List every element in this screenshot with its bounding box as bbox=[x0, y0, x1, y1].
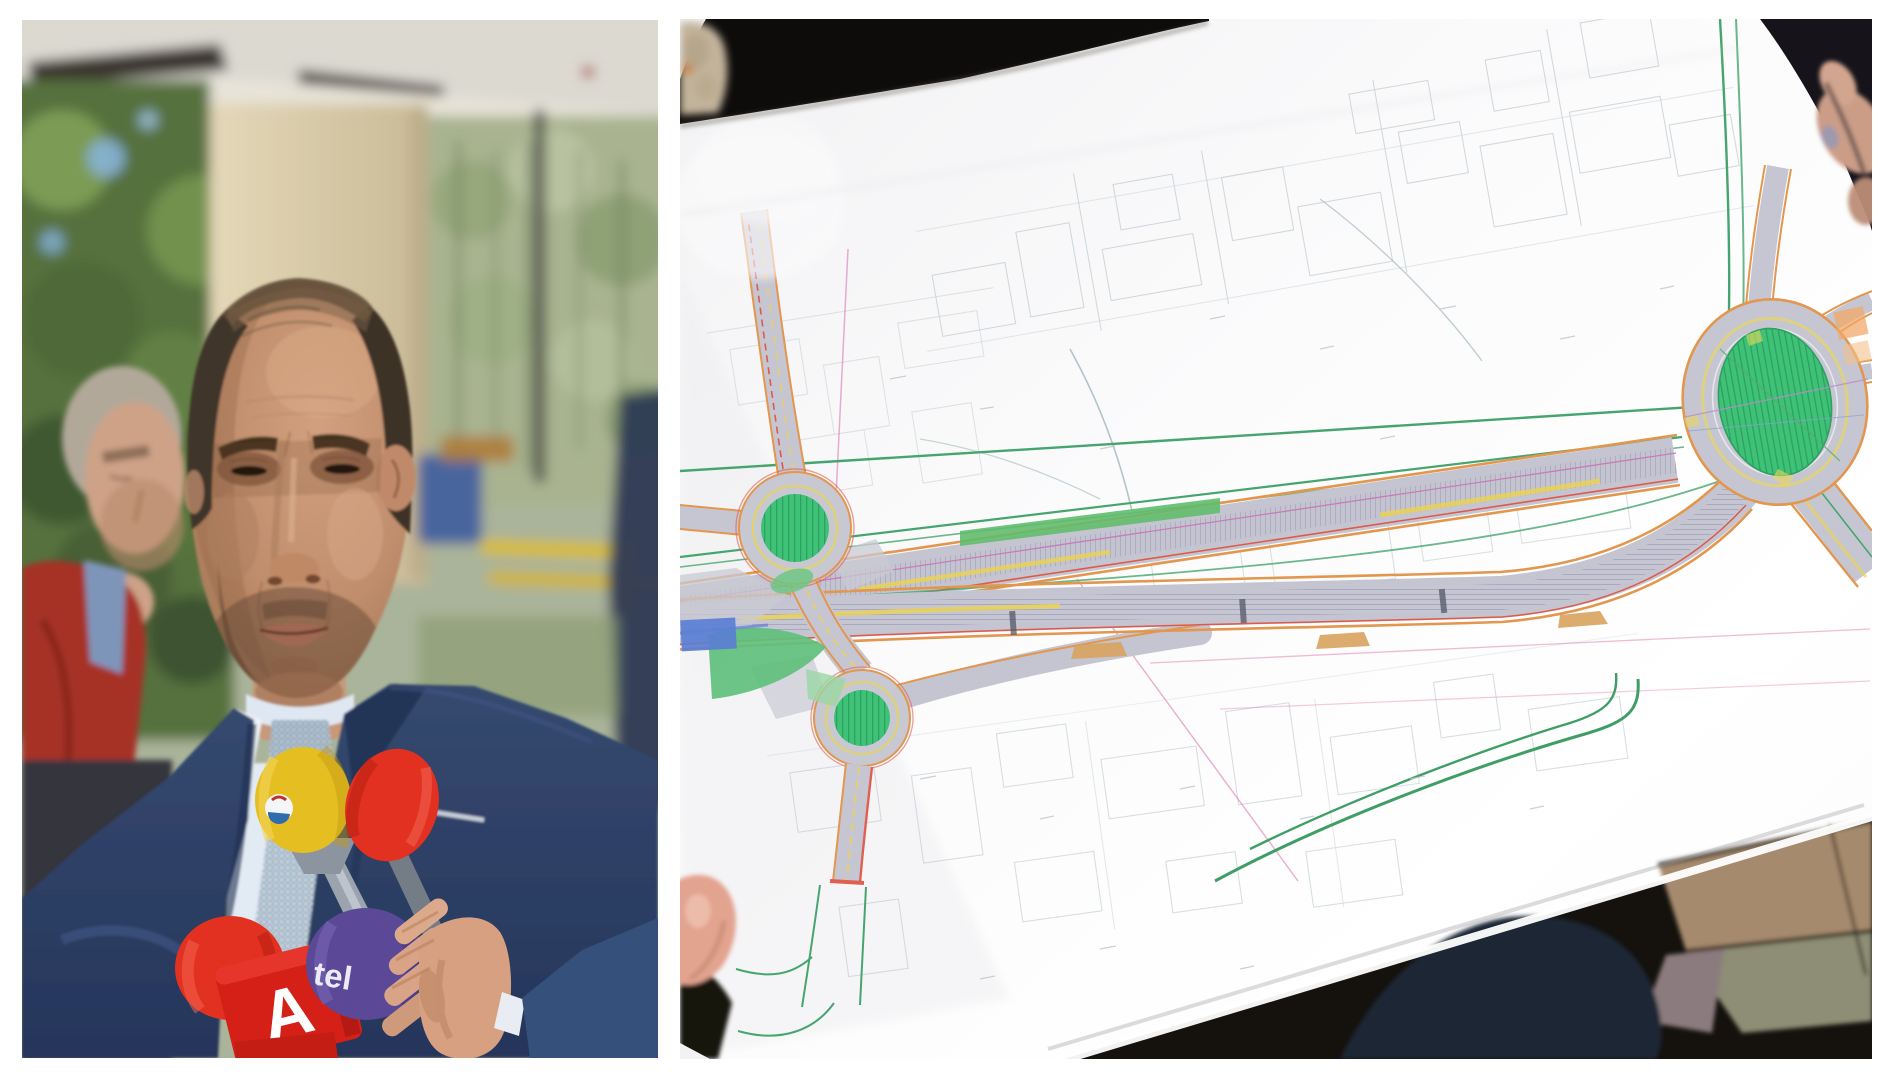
svg-text:tel: tel bbox=[311, 954, 355, 997]
